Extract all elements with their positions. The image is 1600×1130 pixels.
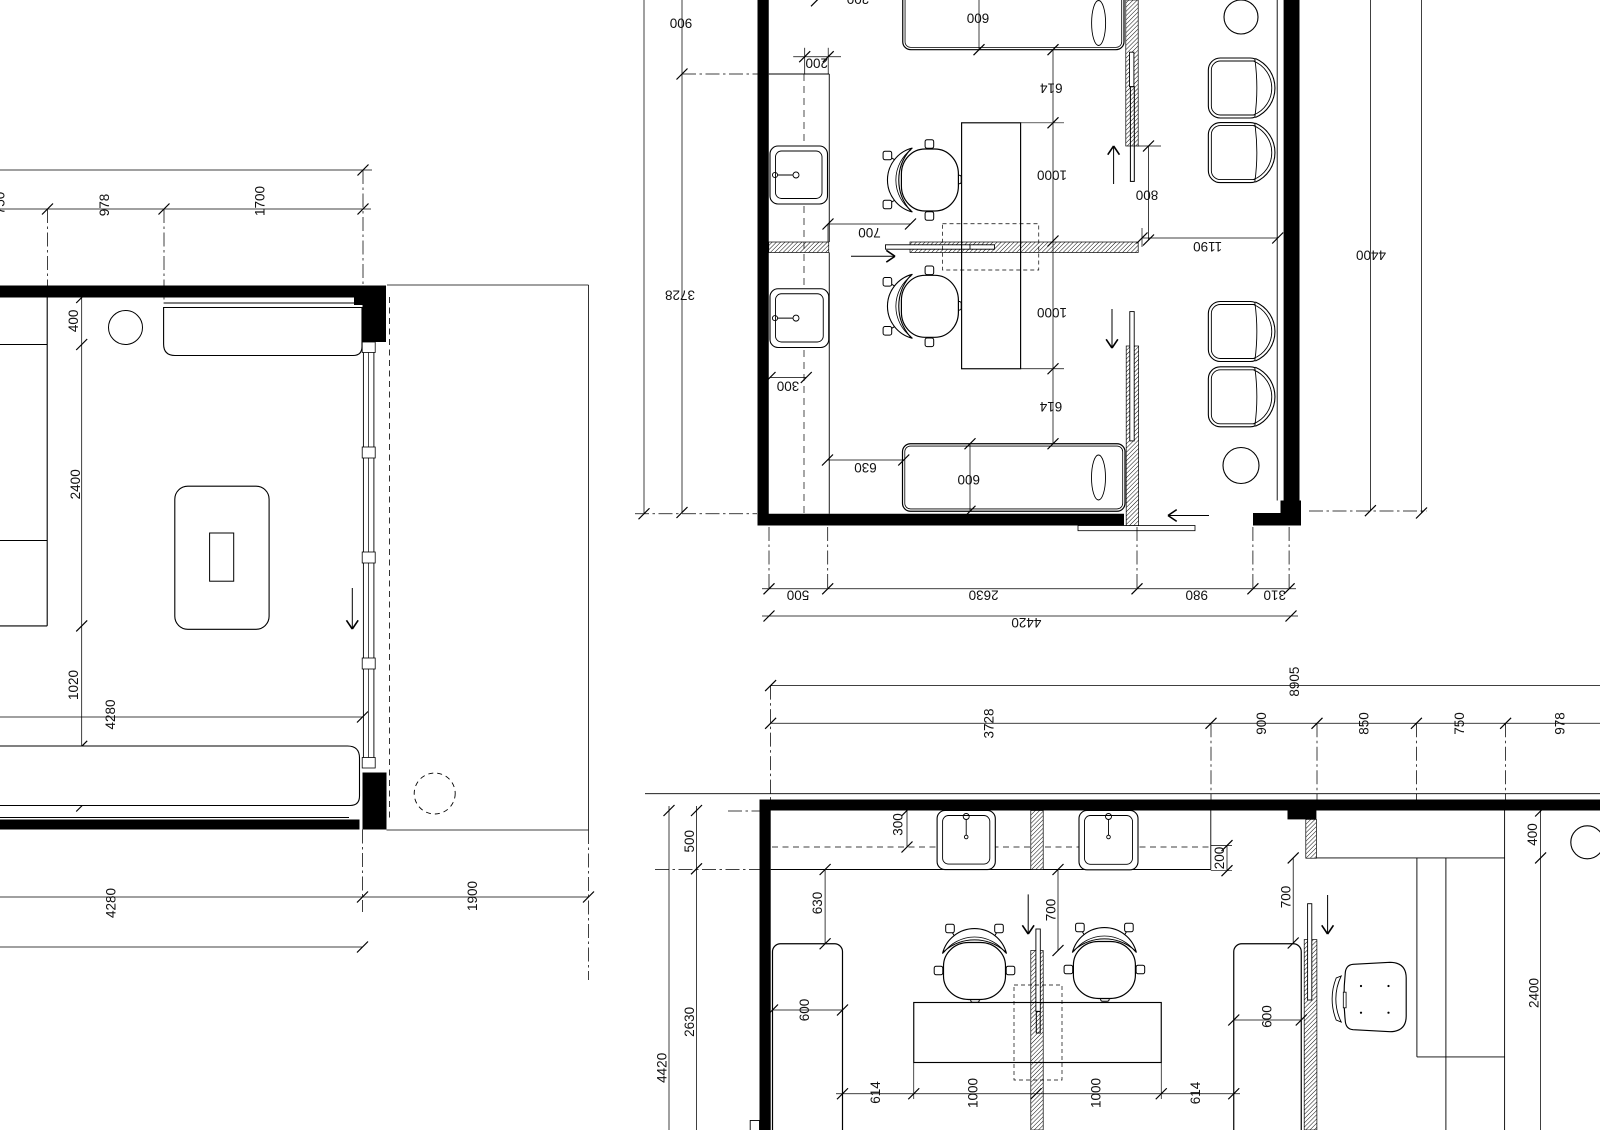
svg-text:600: 600 — [1259, 1005, 1274, 1028]
svg-text:1900: 1900 — [465, 881, 480, 911]
svg-text:1000: 1000 — [1037, 305, 1067, 320]
svg-text:300: 300 — [891, 813, 906, 836]
svg-text:1000: 1000 — [1089, 1078, 1104, 1108]
svg-text:1000: 1000 — [1037, 167, 1067, 182]
svg-text:200: 200 — [1212, 847, 1227, 870]
svg-text:4420: 4420 — [654, 1053, 669, 1083]
svg-text:4280: 4280 — [104, 888, 119, 918]
svg-text:614: 614 — [868, 1081, 883, 1104]
svg-text:8905: 8905 — [1287, 667, 1302, 697]
svg-text:600: 600 — [797, 999, 812, 1022]
svg-text:400: 400 — [1525, 823, 1540, 846]
svg-text:2400: 2400 — [1527, 978, 1542, 1008]
svg-text:2630: 2630 — [682, 1007, 697, 1037]
svg-text:3728: 3728 — [982, 708, 997, 738]
svg-text:614: 614 — [1188, 1081, 1203, 1104]
svg-text:630: 630 — [854, 460, 877, 475]
svg-text:750: 750 — [1452, 712, 1467, 735]
svg-text:614: 614 — [1040, 81, 1063, 96]
svg-text:4400: 4400 — [1356, 247, 1386, 262]
svg-text:630: 630 — [810, 892, 825, 915]
svg-text:800: 800 — [1136, 187, 1159, 202]
svg-text:500: 500 — [787, 587, 810, 602]
svg-text:978: 978 — [97, 194, 112, 217]
svg-text:500: 500 — [682, 830, 697, 853]
svg-text:200: 200 — [847, 0, 870, 6]
svg-text:614: 614 — [1039, 399, 1062, 414]
svg-text:1000: 1000 — [966, 1078, 981, 1108]
svg-text:600: 600 — [967, 10, 990, 25]
svg-text:900: 900 — [1254, 712, 1269, 735]
svg-text:700: 700 — [858, 225, 881, 240]
svg-text:850: 850 — [1357, 712, 1372, 735]
svg-text:980: 980 — [1185, 587, 1208, 602]
svg-text:300: 300 — [777, 378, 800, 393]
svg-text:4280: 4280 — [103, 699, 118, 729]
svg-text:2400: 2400 — [68, 469, 83, 499]
svg-text:900: 900 — [670, 15, 693, 30]
svg-text:1020: 1020 — [66, 670, 81, 700]
svg-text:400: 400 — [66, 310, 81, 333]
svg-text:310: 310 — [1263, 587, 1286, 602]
svg-text:700: 700 — [1043, 899, 1058, 922]
svg-text:3728: 3728 — [665, 287, 695, 302]
svg-text:4420: 4420 — [1011, 615, 1041, 630]
svg-text:1700: 1700 — [253, 186, 268, 216]
svg-text:1190: 1190 — [1193, 239, 1222, 254]
svg-text:700: 700 — [1278, 886, 1293, 909]
svg-text:200: 200 — [805, 55, 828, 70]
svg-text:600: 600 — [957, 472, 980, 487]
svg-text:978: 978 — [1553, 712, 1568, 735]
svg-text:750: 750 — [0, 192, 8, 215]
svg-text:2630: 2630 — [969, 587, 999, 602]
